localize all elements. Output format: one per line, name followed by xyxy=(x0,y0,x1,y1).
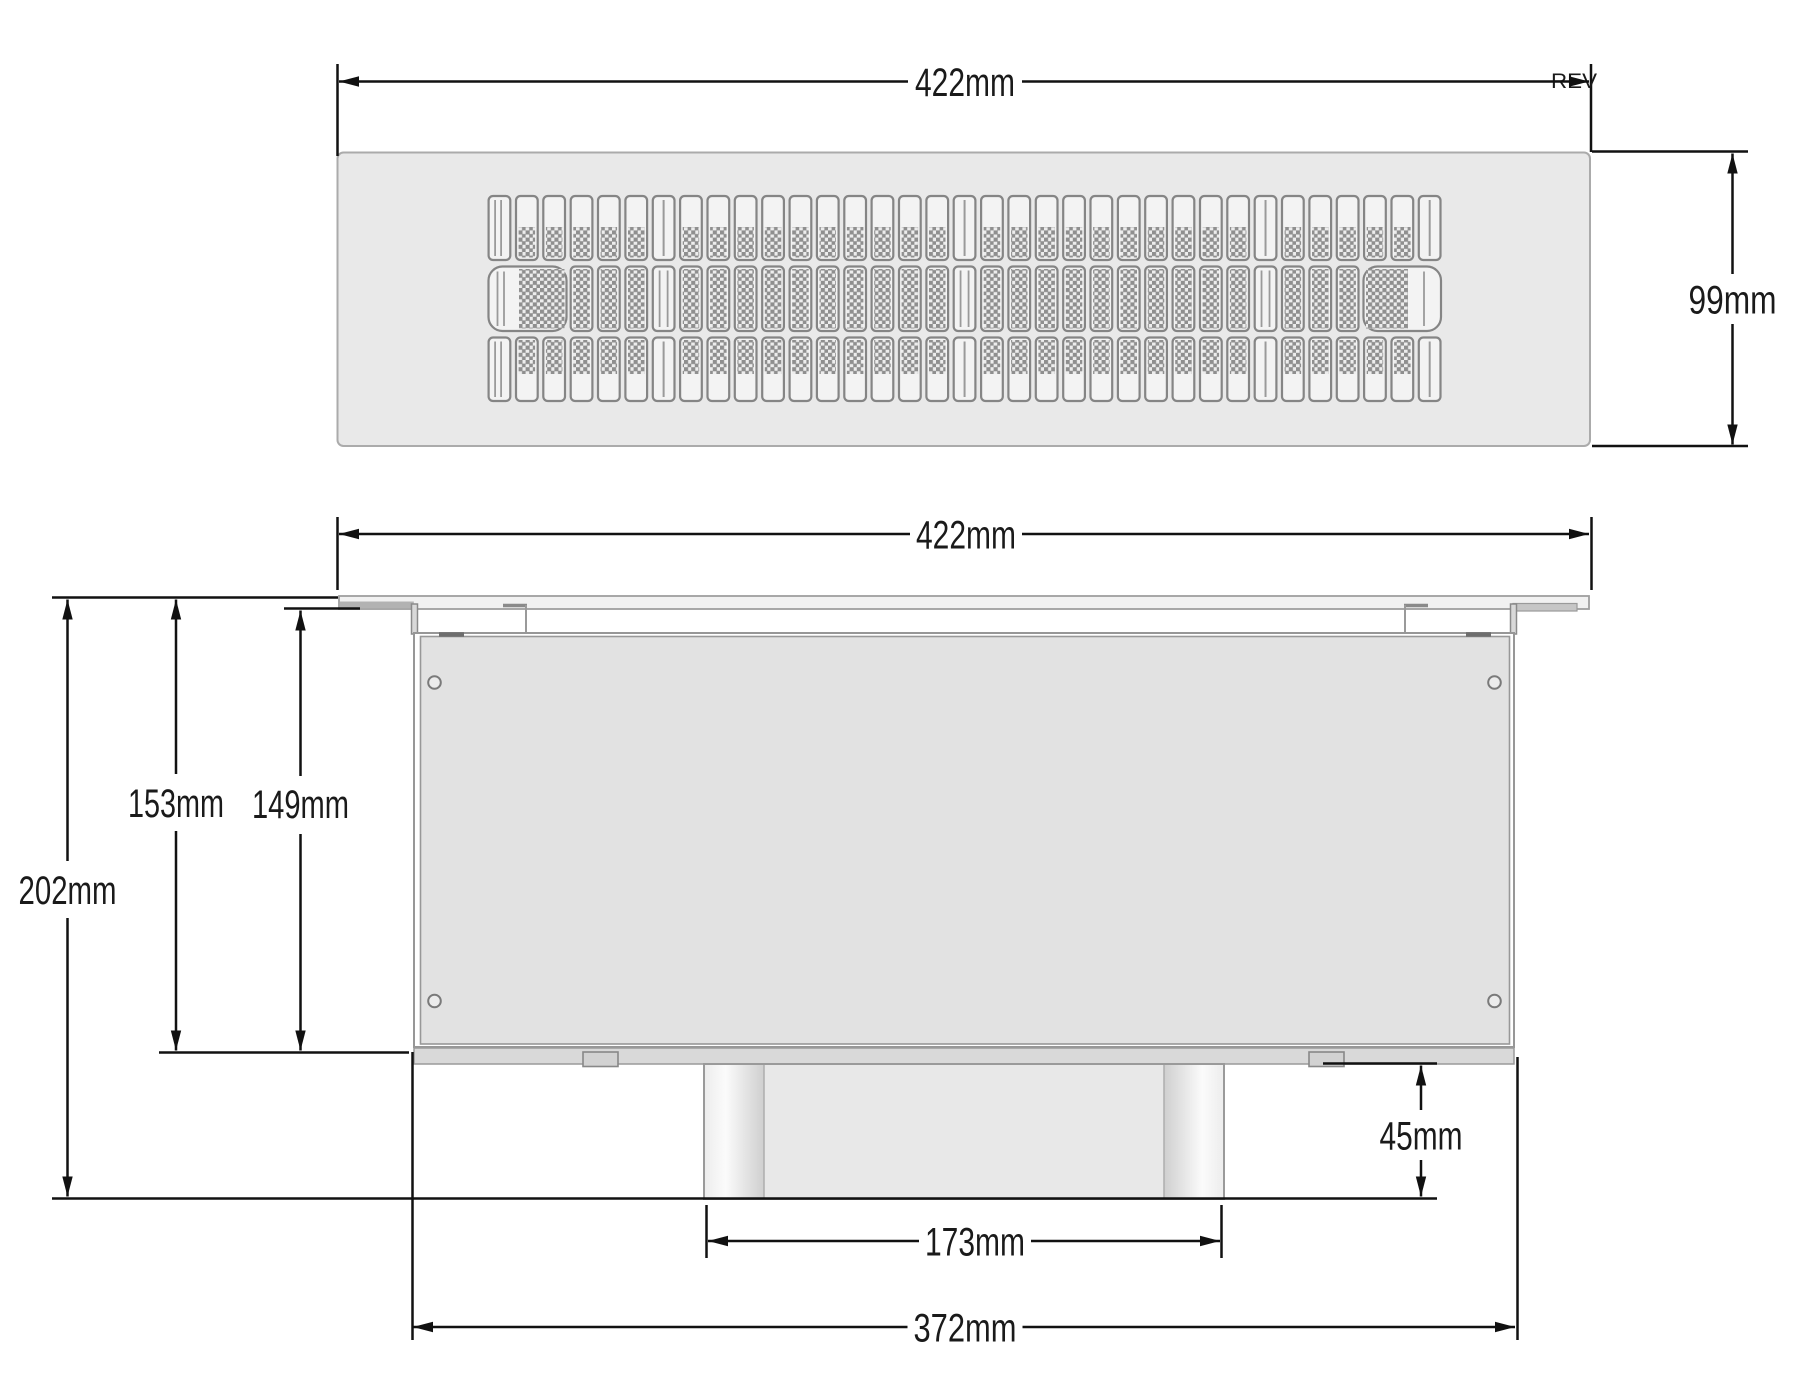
svg-text:422mm: 422mm xyxy=(915,61,1015,105)
svg-text:45mm: 45mm xyxy=(1380,1115,1463,1159)
svg-text:202mm: 202mm xyxy=(19,869,117,913)
svg-text:422mm: 422mm xyxy=(916,514,1016,558)
svg-text:173mm: 173mm xyxy=(925,1221,1025,1265)
svg-text:149mm: 149mm xyxy=(252,783,349,827)
svg-text:99mm: 99mm xyxy=(1689,279,1777,323)
svg-text:153mm: 153mm xyxy=(128,782,224,826)
svg-text:372mm: 372mm xyxy=(914,1307,1017,1351)
